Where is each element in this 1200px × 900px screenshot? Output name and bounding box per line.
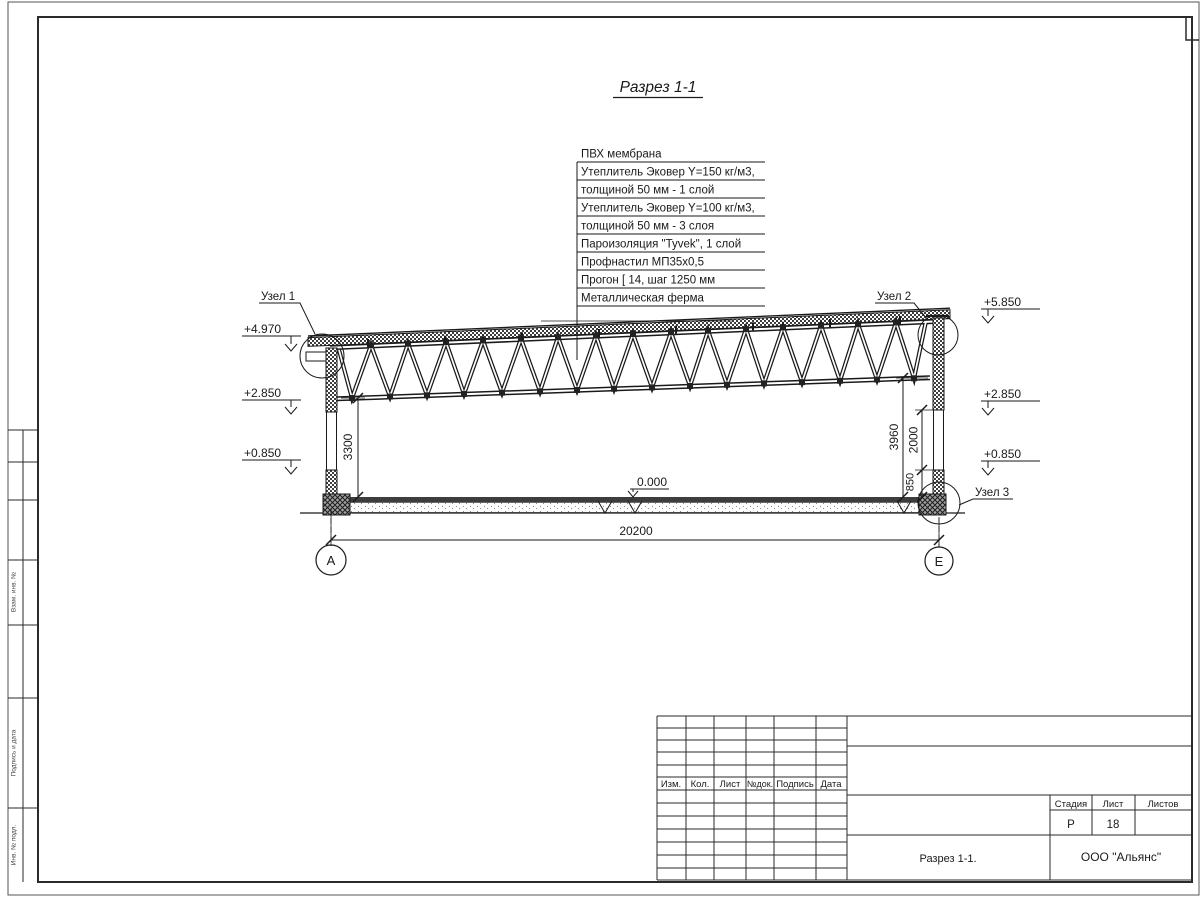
section-view xyxy=(300,308,965,515)
stage-label: Стадия xyxy=(1055,799,1087,810)
dim-value: 3300 xyxy=(341,433,355,460)
elevation-left-0850: +0.850 xyxy=(242,446,301,474)
elevation-value: +0.850 xyxy=(244,446,281,460)
title-block: Изм. Кол. Лист №док. Подпись Дата Стадия… xyxy=(657,716,1192,880)
elevation-right-2850: +2.850 xyxy=(981,387,1040,415)
company-name: ООО "Альянс" xyxy=(1081,850,1161,864)
elevation-symbol xyxy=(242,400,301,414)
col-data: Дата xyxy=(820,779,842,790)
elevation-value: +2.850 xyxy=(984,387,1021,401)
callout-row-5: толщиной 50 мм - 3 слоя xyxy=(581,221,714,233)
right-wall xyxy=(933,318,944,497)
side-stamp-label-inv: Инв. № подл. xyxy=(11,825,18,866)
revision-table-grid xyxy=(657,716,847,880)
sheets-label: Листов xyxy=(1148,799,1179,810)
axis-a: А xyxy=(316,509,346,575)
elevation-value: +5.850 xyxy=(984,295,1021,309)
elevation-left-4970: +4.970 xyxy=(242,322,301,351)
right-wall-panel-bottom xyxy=(933,470,944,497)
node-2-label: Узел 2 xyxy=(877,291,911,303)
foundation-block-right xyxy=(919,494,946,515)
col-list: Лист xyxy=(720,779,741,790)
elevation-symbol xyxy=(242,460,301,474)
sheet-label: Лист xyxy=(1103,799,1124,810)
zero-level-symbol xyxy=(628,489,669,497)
side-stamp-grid xyxy=(8,430,38,882)
left-wall-panel-bottom xyxy=(326,470,337,497)
span-dim-value: 20200 xyxy=(619,524,653,538)
callout-row-6: Пароизоляция "Tyvek", 1 слой xyxy=(581,239,741,251)
elevation-symbol xyxy=(981,401,1040,415)
node-3-leader xyxy=(959,499,1013,505)
dim-value: 3960 xyxy=(887,423,901,450)
side-stamp-label-podpis: Подпись и дата xyxy=(11,729,18,776)
col-ndok: №док. xyxy=(747,779,773,789)
span-dimension: 20200 xyxy=(326,510,944,547)
side-stamp-labels: Взам. инв. № Подпись и дата Инв. № подл. xyxy=(11,572,18,865)
callout-row-9: Металлическая ферма xyxy=(581,293,704,305)
col-podpis: Подпись xyxy=(776,779,814,790)
floor-concrete xyxy=(337,503,932,513)
window-dim-value: 2000 xyxy=(907,426,921,453)
elevation-symbol xyxy=(981,461,1040,475)
elevation-right-0850: +0.850 xyxy=(981,447,1040,475)
elevation-symbol xyxy=(981,309,1040,323)
col-kol: Кол. xyxy=(691,779,710,790)
callout-row-8: Прогон [ 14, шаг 1250 мм xyxy=(581,275,715,287)
sill-dim-value: 850 xyxy=(905,473,917,491)
view-title: Разрез 1-1 xyxy=(613,79,703,98)
callout-row-3: толщиной 50 мм - 1 слой xyxy=(581,185,714,197)
elevation-value: +2.850 xyxy=(244,386,281,400)
axis-e-letter: Е xyxy=(935,554,944,569)
elevation-left-2850: +2.850 xyxy=(242,386,301,414)
view-title-text: Разрез 1-1 xyxy=(620,79,697,96)
left-height-dimension: 3300 xyxy=(341,393,365,502)
revision-table-headers: Изм. Кол. Лист №док. Подпись Дата xyxy=(661,779,842,790)
sheet-value: 18 xyxy=(1107,819,1120,831)
axis-a-letter: А xyxy=(327,553,336,568)
left-wall-panel-top xyxy=(326,348,337,412)
zero-level-mark: 0.000 xyxy=(628,475,669,497)
left-wall xyxy=(326,348,337,497)
col-izm: Изм. xyxy=(661,779,681,790)
elevation-right-5850: +5.850 xyxy=(981,295,1040,323)
node-3-label: Узел 3 xyxy=(975,487,1009,499)
right-wall-panel-top xyxy=(933,318,944,410)
elevation-value: +0.850 xyxy=(984,447,1021,461)
foundation-block-left xyxy=(323,494,350,515)
elevation-value: +4.970 xyxy=(244,322,281,336)
drawing-sheet: Взам. инв. № Подпись и дата Инв. № подл. xyxy=(0,0,1200,900)
floor-screed xyxy=(337,497,932,503)
main-stamp-texts: Стадия Лист Листов Р 18 Разрез 1-1. ООО … xyxy=(919,799,1178,865)
zero-level-value: 0.000 xyxy=(637,475,667,489)
callout-row-4: Утеплитель Эковер Y=100 кг/м3, xyxy=(581,203,755,215)
stage-value: Р xyxy=(1067,819,1075,831)
elevation-symbol xyxy=(242,336,301,351)
callout-row-7: Профнастил МП35х0,5 xyxy=(581,257,704,269)
side-stamp-label-vzam: Взам. инв. № xyxy=(11,572,18,612)
drawing-name: Разрез 1-1. xyxy=(919,853,976,865)
node-1-label: Узел 1 xyxy=(261,291,295,303)
callout-row-1: ПВХ мембрана xyxy=(581,149,662,161)
window-dimension: 2000 850 xyxy=(905,405,934,502)
callout-row-2: Утеплитель Эковер Y=150 кг/м3, xyxy=(581,167,755,179)
